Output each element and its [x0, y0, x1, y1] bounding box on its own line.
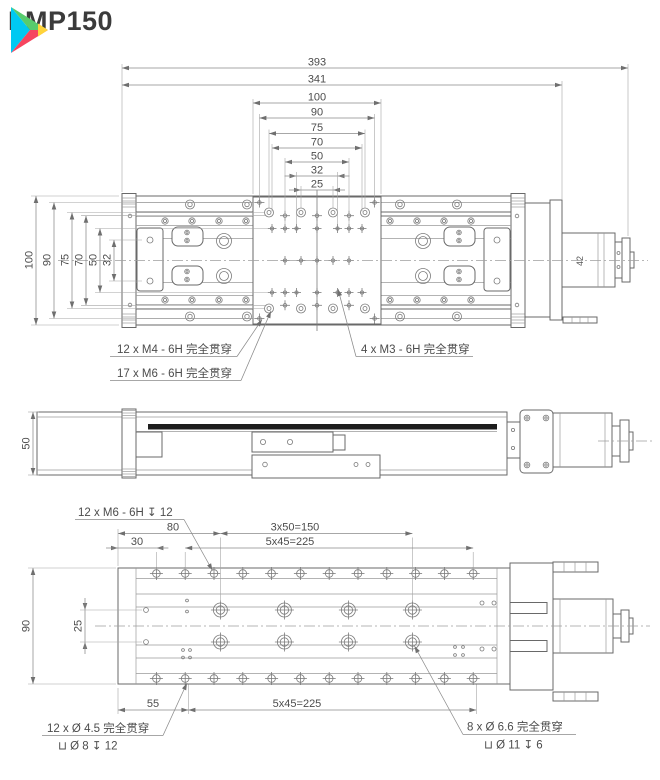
bottom-view-geometry — [28, 520, 650, 736]
side-view: 50 — [21, 409, 653, 478]
top-view-geometry — [31, 64, 648, 381]
hole-note-m4: 12 x M4 - 6H 完全贯穿 — [117, 342, 232, 356]
drawing-page: 393 341 100 90 75 70 50 32 25 100 90 75 … — [0, 0, 660, 780]
side-view-geometry — [28, 409, 652, 478]
technical-drawing: 393 341 100 90 75 70 50 32 25 100 90 75 … — [0, 0, 660, 780]
dim-label: 25 — [311, 179, 323, 191]
hole-note-m6: 17 x M6 - 6H 完全贯穿 — [117, 366, 232, 380]
hole-note-m6-depth: 12 x M6 - 6H ↧ 12 — [78, 507, 173, 519]
hole-note-d45-cbore: ⊔ Ø 8 ↧ 12 — [58, 741, 118, 753]
dim-label: 55 — [147, 698, 159, 710]
dim-label: 3x50=150 — [271, 522, 320, 534]
hole-note-d45: 12 x Ø 4.5 完全贯穿 — [47, 721, 149, 735]
dim-label: 100 — [24, 251, 36, 269]
dim-label: 80 — [167, 522, 179, 534]
motor-label: 42 — [575, 256, 585, 266]
dim-label: 75 — [60, 254, 72, 266]
dim-label: 5x45=225 — [266, 536, 315, 548]
dim-label: 25 — [73, 620, 85, 632]
dim-label: 50 — [311, 151, 323, 163]
dim-label: 90 — [21, 620, 33, 632]
hole-note-d66: 8 x Ø 6.6 完全贯穿 — [467, 720, 563, 734]
dim-label: 90 — [311, 107, 323, 119]
dim-label: 30 — [131, 536, 143, 548]
dim-label: 70 — [311, 137, 323, 149]
dim-label: 100 — [308, 92, 326, 104]
brand-logo-icon — [8, 6, 54, 56]
dim-label: 32 — [311, 165, 323, 177]
dim-label: 50 — [88, 254, 100, 266]
dim-label: 75 — [311, 122, 323, 134]
hole-note-d66-cbore: ⊔ Ø 11 ↧ 6 — [484, 740, 543, 752]
top-view: 393 341 100 90 75 70 50 32 25 100 90 75 … — [24, 57, 649, 381]
dim-label: 5x45=225 — [273, 698, 322, 710]
dim-label: 70 — [74, 254, 86, 266]
bottom-view: 80 30 3x50=150 5x45=225 55 5x45=225 90 2… — [21, 507, 651, 753]
hole-note-m3: 4 x M3 - 6H 完全贯穿 — [361, 342, 470, 356]
dim-label: 393 — [308, 57, 326, 69]
dim-label: 32 — [102, 254, 114, 266]
header: LMP150 — [8, 6, 113, 37]
dim-label: 90 — [42, 254, 54, 266]
dim-label: 50 — [21, 437, 33, 449]
dim-label: 341 — [308, 74, 326, 86]
